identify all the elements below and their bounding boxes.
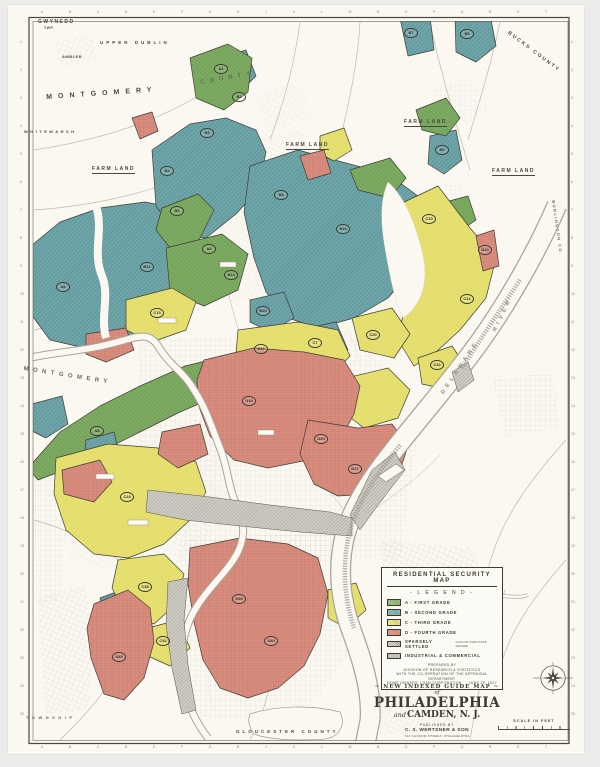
league-island	[249, 707, 343, 740]
title-cartouche: NEW INDEXED GUIDE MAP of PHILADELPHIA an…	[366, 684, 508, 738]
title-and-word: and	[394, 711, 406, 719]
scale-bar: SCALE IN FEET	[498, 719, 570, 730]
map-title-city: PHILADELPHIA	[366, 696, 508, 710]
legend-swatch-5	[387, 653, 401, 660]
legend-item-0: A - FIRST GRADE	[387, 599, 497, 606]
publisher-address: 744 SANSOM STREET, PHILADELPHIA	[366, 734, 508, 738]
legend-item-2: C - THIRD GRADE	[387, 619, 497, 626]
publisher-name: C. S. WERTSNER & SON	[366, 728, 508, 733]
scale-bar-ruler	[498, 726, 570, 731]
title-camden: CAMDEN, N. J.	[407, 710, 480, 720]
legend-label-3: D - FOURTH GRADE	[405, 630, 457, 635]
legend-item-4: SPARSELY SETTLED(COLOR INDICATES GRADE)	[387, 639, 497, 649]
map-sheet: GWYNEDDTWP.AMBLERUPPER DUBLINMONTGOMERYC…	[0, 0, 600, 767]
legend-title: RESIDENTIAL SECURITY MAP	[387, 572, 497, 587]
map-title-city2: andCAMDEN, N. J.	[366, 710, 508, 720]
legend-rows: A - FIRST GRADEB - SECOND GRADEC - THIRD…	[387, 599, 497, 659]
legend-item-3: D - FOURTH GRADE	[387, 629, 497, 636]
map-canvas	[0, 0, 600, 767]
legend-swatch-4	[387, 641, 401, 648]
legend-label-2: C - THIRD GRADE	[405, 620, 451, 625]
legend-swatch-0	[387, 599, 401, 606]
legend-item-1: B - SECOND GRADE	[387, 609, 497, 616]
legend-swatch-3	[387, 629, 401, 636]
legend-box: RESIDENTIAL SECURITY MAP - L E G E N D -…	[381, 567, 503, 690]
legend-prepared-block: PREPARED BY DIVISION OF RESEARCH & STATI…	[387, 663, 497, 686]
legend-item-5: INDUSTRIAL & COMMERCIAL	[387, 653, 497, 660]
legend-label-5: INDUSTRIAL & COMMERCIAL	[405, 653, 481, 658]
legend-label-0: A - FIRST GRADE	[405, 600, 450, 605]
legend-label-4: SPARSELY SETTLED	[405, 639, 454, 649]
legend-swatch-2	[387, 619, 401, 626]
prepared-line-3: WITH THE CO-OPERATION OF THE APPRAISAL D…	[387, 672, 497, 681]
published-by-label: PUBLISHED BY	[366, 723, 508, 727]
legend-note-4: (COLOR INDICATES GRADE)	[456, 640, 497, 648]
legend-swatch-1	[387, 609, 401, 616]
legend-subtitle: - L E G E N D -	[387, 590, 497, 596]
legend-label-1: B - SECOND GRADE	[405, 610, 457, 615]
scale-bar-label: SCALE IN FEET	[498, 719, 570, 723]
